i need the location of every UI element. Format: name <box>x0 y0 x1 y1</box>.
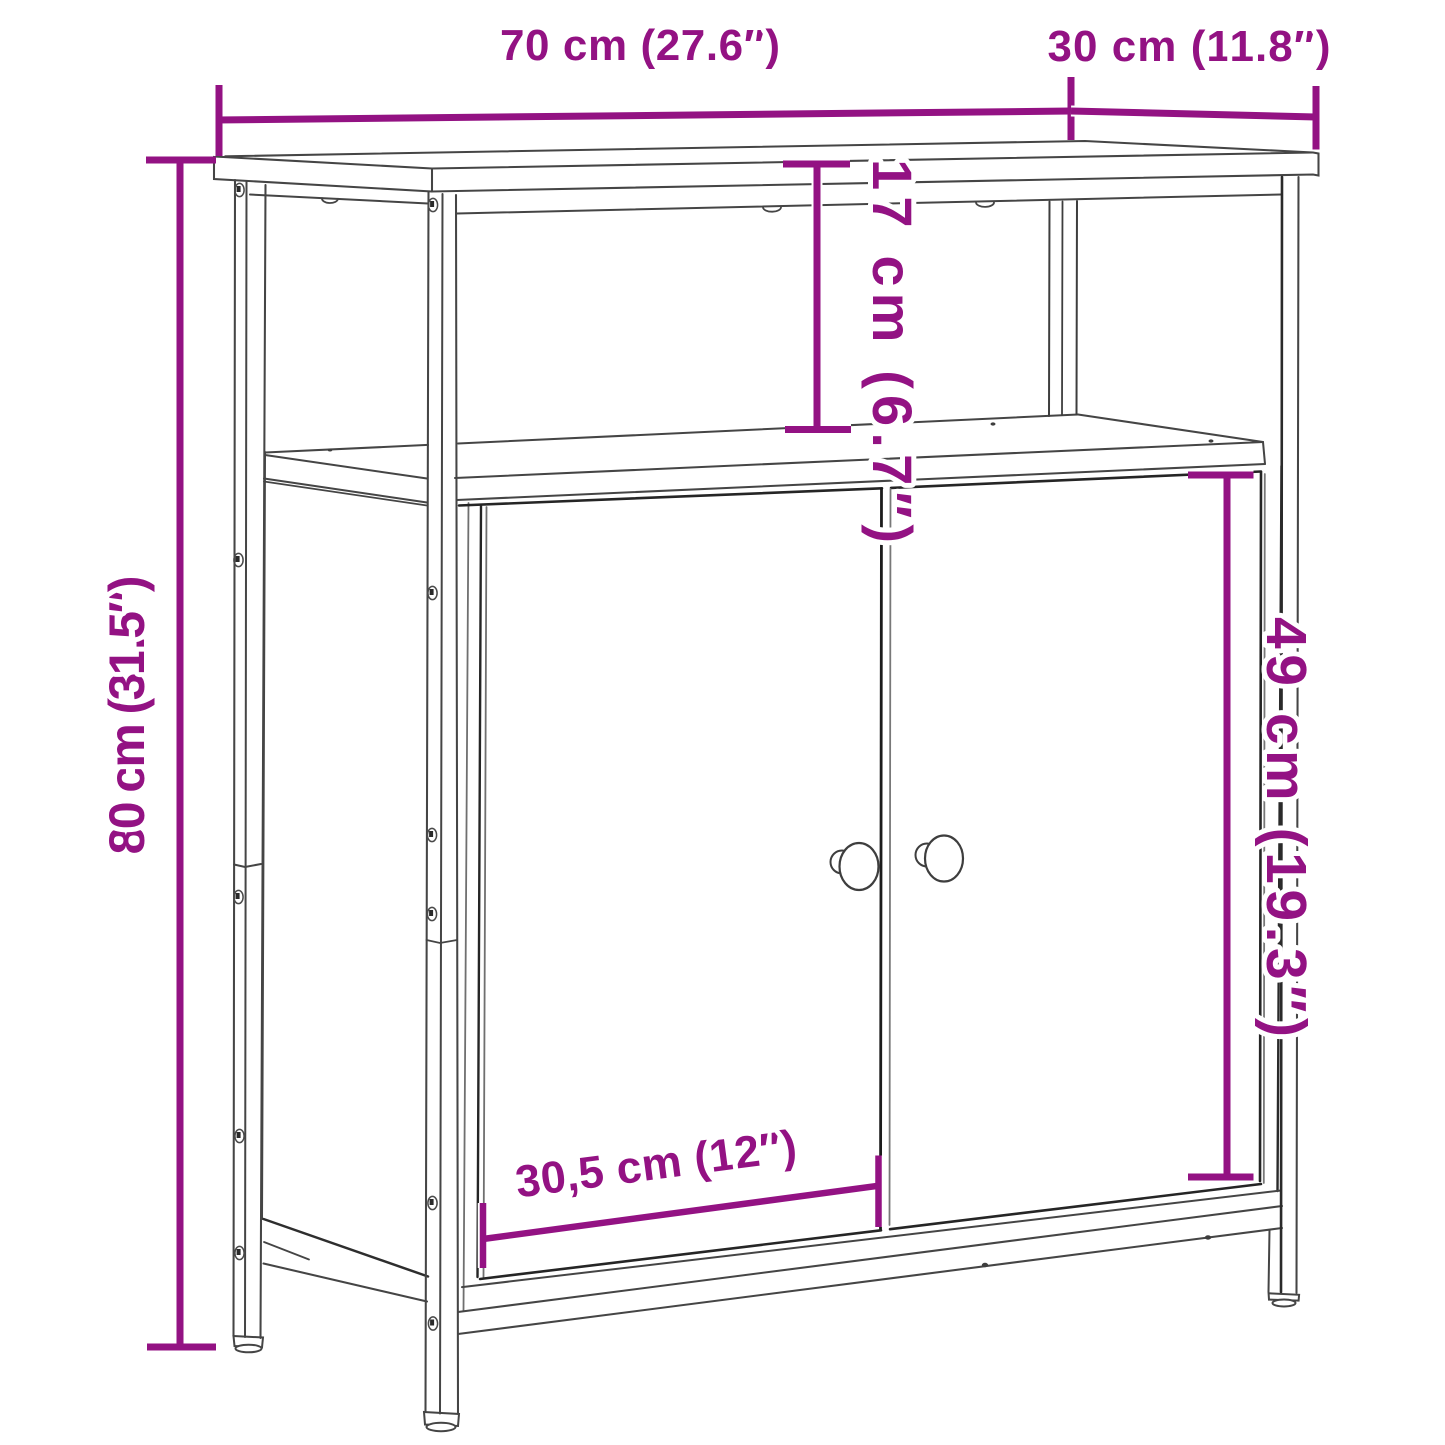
svg-text:70 cm (27.6″): 70 cm (27.6″) <box>500 21 780 70</box>
svg-text:49 cm (19.3″): 49 cm (19.3″) <box>1254 617 1318 1037</box>
svg-text:80 cm (31.5″): 80 cm (31.5″) <box>99 576 155 855</box>
svg-text:30 cm (11.8″): 30 cm (11.8″) <box>1048 22 1331 71</box>
